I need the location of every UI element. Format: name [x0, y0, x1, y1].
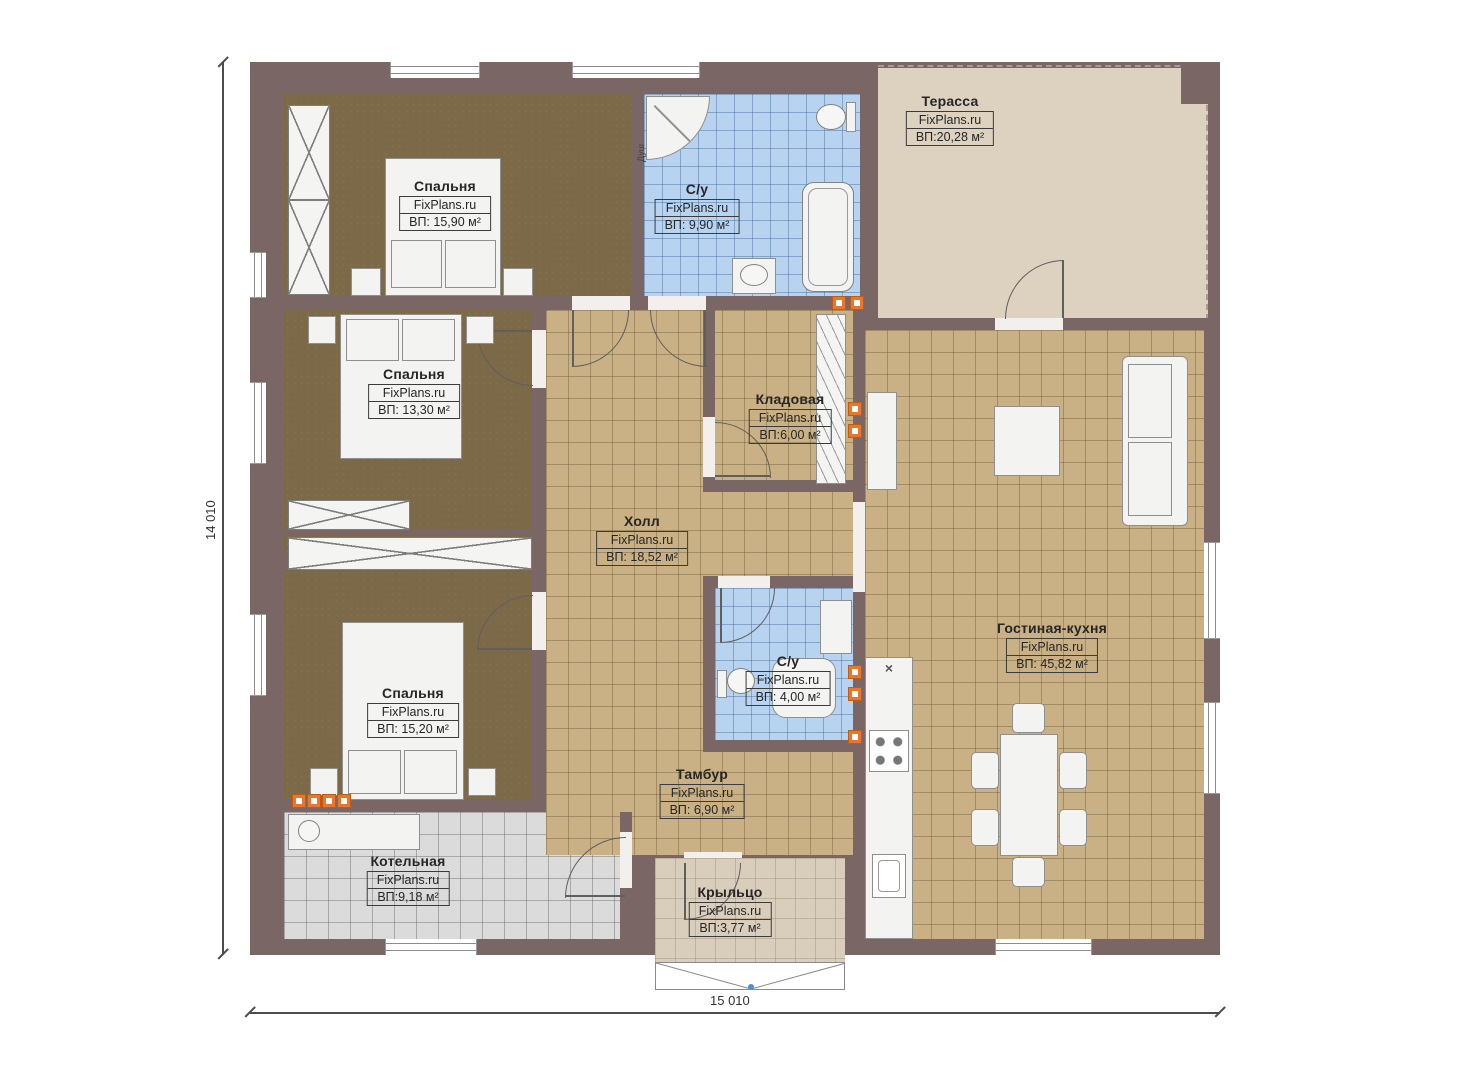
room-label-hall: Холл FixPlans.ru ВП: 18,52 м²: [596, 513, 688, 566]
hob-vent-icon: ×: [870, 660, 908, 676]
radiator-marker: [337, 794, 351, 808]
room-brand: FixPlans.ru: [747, 672, 830, 689]
pillow-symbol: [391, 240, 442, 288]
chair-symbol: [1059, 752, 1087, 789]
room-label-bedroom-2: Спальня FixPlans.ru ВП: 13,30 м²: [368, 366, 460, 419]
pillow-symbol: [348, 750, 401, 794]
pillow-symbol: [445, 240, 496, 288]
nightstand-symbol: [308, 316, 336, 344]
window: [390, 62, 480, 78]
room-brand: FixPlans.ru: [750, 410, 831, 427]
room-area: ВП: 45,82 м²: [1007, 656, 1097, 672]
wall: [703, 740, 853, 752]
radiator-marker: [848, 730, 862, 744]
tall-cabinet-symbol: [867, 392, 897, 490]
room-info-box: FixPlans.ru ВП: 18,52 м²: [596, 531, 688, 566]
nightstand-symbol: [466, 316, 494, 344]
sink-bowl-symbol: [740, 264, 768, 286]
room-name: Гостиная-кухня: [997, 620, 1107, 636]
room-brand: FixPlans.ru: [690, 903, 771, 920]
room-label-terrace: Терасса FixPlans.ru ВП:20,28 м²: [906, 93, 994, 146]
toilet-tank-symbol: [717, 670, 727, 698]
radiator-marker: [848, 402, 862, 416]
room-brand: FixPlans.ru: [400, 197, 490, 214]
sofa-seat: [1128, 364, 1172, 438]
radiator-marker: [322, 794, 336, 808]
radiator-marker: [848, 665, 862, 679]
wall: [703, 576, 715, 752]
room-area: ВП: 15,90 м²: [400, 214, 490, 230]
door-opening: [648, 296, 706, 310]
room-name: С/у: [746, 653, 831, 669]
room-label-living-kitchen: Гостиная-кухня FixPlans.ru ВП: 45,82 м²: [997, 620, 1107, 673]
radiator-marker: [292, 794, 306, 808]
kitchen-sink-symbol: [872, 854, 906, 898]
room-label-bedroom-3: Спальня FixPlans.ru ВП: 15,20 м²: [367, 685, 459, 738]
door-opening: [532, 592, 546, 650]
pillow-symbol: [346, 319, 399, 361]
terrace-corner-post: [1181, 62, 1213, 104]
room-label-storage: Кладовая FixPlans.ru ВП:6,00 м²: [749, 391, 832, 444]
room-name: Крыльцо: [689, 884, 772, 900]
room-info-box: FixPlans.ru ВП: 4,00 м²: [746, 671, 831, 706]
radiator-marker: [307, 794, 321, 808]
room-label-bathroom-main: С/у FixPlans.ru ВП: 9,90 м²: [655, 181, 740, 234]
door-leaf: [477, 648, 532, 650]
room-name: Спальня: [367, 685, 459, 701]
pillow-symbol: [404, 750, 457, 794]
room-brand: FixPlans.ru: [368, 704, 458, 721]
radiator-marker: [848, 687, 862, 701]
room-info-box: FixPlans.ru ВП:6,00 м²: [749, 409, 832, 444]
nightstand-symbol: [468, 768, 496, 796]
door-leaf: [572, 310, 574, 366]
nightstand-symbol: [503, 268, 533, 296]
room-area: ВП:9,18 м²: [368, 889, 449, 905]
room-info-box: FixPlans.ru ВП:20,28 м²: [906, 111, 994, 146]
dining-table-symbol: [1000, 734, 1058, 856]
chair-symbol: [1012, 857, 1045, 887]
room-brand: FixPlans.ru: [369, 385, 459, 402]
window: [250, 614, 266, 696]
bathtub-symbol: [802, 182, 854, 292]
wall: [860, 62, 878, 330]
chair-symbol: [1012, 703, 1045, 733]
passage-opening: [853, 502, 865, 592]
room-label-porch: Крыльцо FixPlans.ru ВП:3,77 м²: [689, 884, 772, 937]
porch-steps: [655, 962, 845, 990]
stove-symbol: [869, 730, 909, 772]
window: [385, 939, 477, 955]
door-opening: [532, 330, 546, 388]
room-name: Тамбур: [660, 766, 745, 782]
room-area: ВП:20,28 м²: [907, 129, 993, 145]
room-name: Терасса: [906, 93, 994, 109]
room-label-bathroom-small: С/у FixPlans.ru ВП: 4,00 м²: [746, 653, 831, 706]
toilet-tank-symbol: [846, 102, 856, 132]
terrace-open-edge-top: [878, 65, 1210, 67]
window: [1204, 542, 1220, 639]
room-area: ВП: 4,00 м²: [747, 689, 830, 705]
room-brand: FixPlans.ru: [368, 872, 449, 889]
wardrobe-symbol: [288, 200, 330, 295]
nightstand-symbol: [310, 768, 338, 796]
sofa-seat: [1128, 442, 1172, 516]
room-label-tambour: Тамбур FixPlans.ru ВП: 6,90 м²: [660, 766, 745, 819]
door-opening: [995, 318, 1063, 330]
room-area: ВП: 9,90 м²: [656, 217, 739, 233]
radiator-marker: [832, 296, 846, 310]
room-brand: FixPlans.ru: [597, 532, 687, 549]
room-name: Спальня: [399, 178, 491, 194]
room-area: ВП: 18,52 м²: [597, 549, 687, 565]
dimension-label-width: 15 010: [710, 993, 750, 1008]
room-name: Котельная: [367, 853, 450, 869]
room-info-box: FixPlans.ru ВП:9,18 м²: [367, 871, 450, 906]
nightstand-symbol: [351, 268, 381, 296]
wall: [284, 530, 532, 535]
room-area: ВП: 13,30 м²: [369, 402, 459, 418]
coffee-table-symbol: [994, 406, 1060, 476]
room-brand: FixPlans.ru: [907, 112, 993, 129]
window: [250, 252, 266, 298]
room-name: С/у: [655, 181, 740, 197]
room-name: Кладовая: [749, 391, 832, 407]
dimension-line-horizontal: [250, 1012, 1220, 1014]
room-brand: FixPlans.ru: [661, 785, 744, 802]
room-info-box: FixPlans.ru ВП: 15,90 м²: [399, 196, 491, 231]
window: [572, 62, 700, 78]
floor-plan-canvas: Душ ×: [0, 0, 1474, 1080]
washing-machine-symbol: [820, 600, 852, 654]
wardrobe-symbol: [288, 500, 410, 530]
dimension-label-height: 14 010: [203, 500, 218, 540]
toilet-symbol: [816, 104, 846, 130]
room-info-box: FixPlans.ru ВП:3,77 м²: [689, 902, 772, 937]
dimension-line-vertical: [222, 62, 224, 955]
door-leaf: [704, 310, 706, 366]
room-info-box: FixPlans.ru ВП: 45,82 м²: [1006, 638, 1098, 673]
door-opening: [572, 296, 630, 310]
room-area: ВП:6,00 м²: [750, 427, 831, 443]
house-plan: Душ ×: [250, 62, 1220, 955]
door-leaf: [720, 588, 722, 642]
window: [995, 939, 1092, 955]
door-leaf: [684, 863, 686, 919]
radiator-marker: [848, 424, 862, 438]
wardrobe-symbol: [288, 537, 532, 570]
room-info-box: FixPlans.ru ВП: 13,30 м²: [368, 384, 460, 419]
wardrobe-symbol: [288, 105, 330, 200]
chair-symbol: [1059, 809, 1087, 846]
room-area: ВП:3,77 м²: [690, 920, 771, 936]
door-opening: [703, 417, 715, 477]
door-leaf: [565, 895, 625, 897]
boiler-sink-symbol: [298, 820, 320, 842]
room-brand: FixPlans.ru: [656, 200, 739, 217]
room-info-box: FixPlans.ru ВП: 9,90 м²: [655, 199, 740, 234]
door-leaf: [715, 475, 770, 477]
room-label-boiler: Котельная FixPlans.ru ВП:9,18 м²: [367, 853, 450, 906]
survey-point-icon: [748, 984, 754, 990]
wall: [632, 94, 644, 296]
door-opening: [718, 576, 770, 588]
room-name: Спальня: [368, 366, 460, 382]
room-brand: FixPlans.ru: [1007, 639, 1097, 656]
pillow-symbol: [402, 319, 455, 361]
room-label-bedroom-1: Спальня FixPlans.ru ВП: 15,90 м²: [399, 178, 491, 231]
room-info-box: FixPlans.ru ВП: 6,90 м²: [660, 784, 745, 819]
room-info-box: FixPlans.ru ВП: 15,20 м²: [367, 703, 459, 738]
shower-label: Душ: [636, 144, 646, 162]
room-name: Холл: [596, 513, 688, 529]
chair-symbol: [971, 809, 999, 846]
window: [1204, 702, 1220, 794]
room-area: ВП: 15,20 м²: [368, 721, 458, 737]
window: [250, 382, 266, 464]
room-area: ВП: 6,90 м²: [661, 802, 744, 818]
radiator-marker: [850, 296, 864, 310]
chair-symbol: [971, 752, 999, 789]
door-leaf: [1062, 260, 1064, 318]
